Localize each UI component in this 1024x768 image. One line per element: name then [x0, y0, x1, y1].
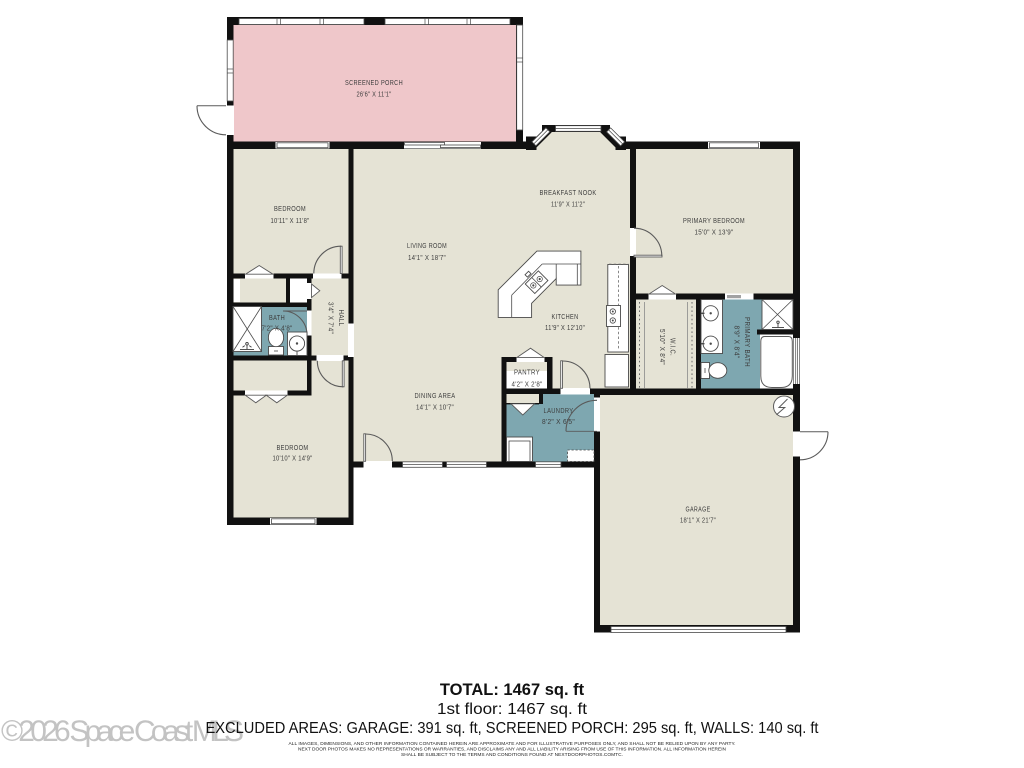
svg-text:PRIMARY BEDROOM: PRIMARY BEDROOM: [683, 216, 745, 225]
svg-text:26'6" X 11'1": 26'6" X 11'1": [357, 92, 392, 99]
svg-text:LAUNDRY: LAUNDRY: [544, 406, 574, 415]
svg-text:GARAGE: GARAGE: [686, 505, 711, 514]
svg-text:BEDROOM: BEDROOM: [277, 443, 309, 452]
svg-text:EXCLUDED AREAS: GARAGE: 391 sq: EXCLUDED AREAS: GARAGE: 391 sq. ft, SCRE…: [206, 720, 820, 737]
svg-text:18'1" X 21'7": 18'1" X 21'7": [680, 518, 716, 525]
svg-text:5'10" X 8'4": 5'10" X 8'4": [658, 329, 665, 365]
svg-text:3'4" X 7'4": 3'4" X 7'4": [327, 302, 334, 334]
svg-text:KITCHEN: KITCHEN: [552, 312, 579, 321]
svg-text:ALL IMAGES, DIMENSIONS, AND OT: ALL IMAGES, DIMENSIONS, AND OTHER INFORM…: [289, 741, 736, 747]
svg-text:LIVING ROOM: LIVING ROOM: [407, 241, 447, 250]
svg-text:PRIMARY BATH: PRIMARY BATH: [743, 317, 752, 367]
svg-text:SCREENED PORCH: SCREENED PORCH: [345, 78, 403, 87]
svg-text:1st floor: 1467 sq. ft: 1st floor: 1467 sq. ft: [437, 701, 588, 718]
svg-text:10'11" X 11'8": 10'11" X 11'8": [271, 218, 310, 225]
svg-text:8'2" X 6'5": 8'2" X 6'5": [542, 419, 575, 426]
svg-text:14'1" X 18'7": 14'1" X 18'7": [408, 255, 446, 262]
svg-text:BATH: BATH: [269, 313, 285, 322]
svg-text:10'10" X 14'9": 10'10" X 14'9": [273, 456, 313, 463]
svg-text:14'1" X 10'7": 14'1" X 10'7": [416, 405, 454, 412]
svg-text:BEDROOM: BEDROOM: [274, 204, 306, 213]
svg-text:BREAKFAST NOOK: BREAKFAST NOOK: [540, 188, 597, 197]
svg-text:NEXT DOOR PHOTOS MAKES NO REPR: NEXT DOOR PHOTOS MAKES NO REPRESENTATION…: [298, 747, 727, 753]
svg-text:TOTAL: 1467 sq. ft: TOTAL: 1467 sq. ft: [440, 681, 585, 699]
svg-text:11'9" X 11'2": 11'9" X 11'2": [551, 202, 585, 209]
svg-text:DINING AREA: DINING AREA: [415, 391, 456, 400]
svg-text:15'0" X 13'9": 15'0" X 13'9": [695, 230, 734, 237]
svg-text:11'9" X 12'10": 11'9" X 12'10": [545, 325, 585, 332]
svg-text:8'9" X 8'4": 8'9" X 8'4": [733, 326, 740, 359]
svg-text:SHALL BE SUBJECT TO THE TERMS: SHALL BE SUBJECT TO THE TERMS AND CONDIT…: [401, 752, 623, 758]
svg-text:7'2" X 4'8": 7'2" X 4'8": [262, 326, 293, 333]
svg-text:HALL: HALL: [337, 310, 346, 327]
svg-text:4'2" X 2'8": 4'2" X 2'8": [512, 382, 543, 389]
svg-text:W.I.C.: W.I.C.: [669, 338, 678, 356]
svg-text:PANTRY: PANTRY: [514, 368, 540, 377]
